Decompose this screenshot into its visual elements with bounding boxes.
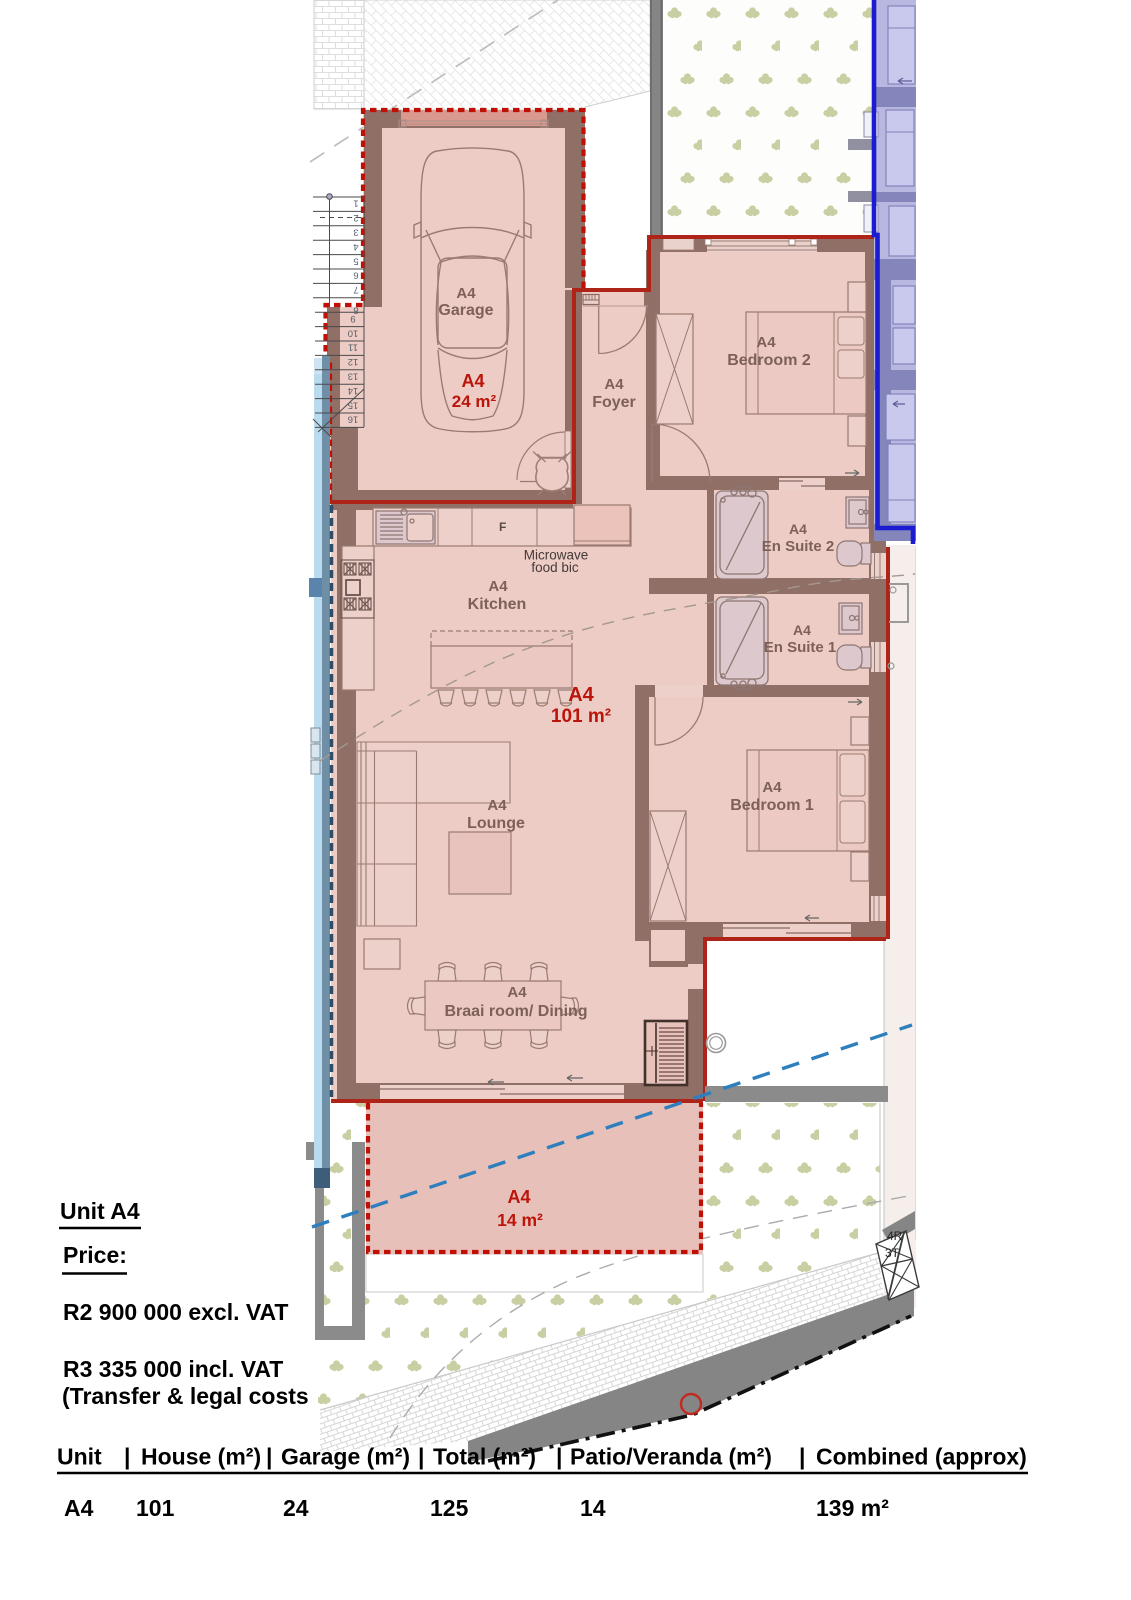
svg-text:14: 14 [580,1495,606,1521]
svg-text:Unit: Unit [57,1444,102,1470]
svg-text:A4: A4 [793,622,811,638]
svg-text:A4: A4 [568,684,594,706]
svg-text:food bic: food bic [531,560,579,575]
svg-text:5: 5 [353,255,358,266]
svg-text:En Suite 1: En Suite 1 [764,639,837,656]
svg-text:13: 13 [348,371,359,382]
svg-text:Price:: Price: [63,1242,127,1268]
svg-text:A4: A4 [488,578,508,595]
svg-text:A4: A4 [64,1495,94,1521]
svg-text:15: 15 [348,399,359,410]
svg-text:2: 2 [353,212,358,223]
svg-text:A4: A4 [456,285,476,302]
svg-text:|: | [556,1444,562,1470]
svg-text:101 m²: 101 m² [551,706,611,727]
svg-text:101: 101 [136,1495,175,1521]
svg-text:A4: A4 [507,1187,530,1207]
svg-text:|: | [799,1444,805,1470]
svg-text:(Transfer & legal costs: (Transfer & legal costs [62,1383,309,1409]
svg-text:A4: A4 [487,797,507,814]
svg-text:12: 12 [348,356,359,367]
svg-text:10: 10 [348,327,359,338]
svg-text:A4: A4 [762,779,782,796]
svg-text:3: 3 [353,227,358,238]
svg-text:A4: A4 [789,521,807,537]
svg-text:Braai room/ Dining: Braai room/ Dining [444,1003,587,1020]
svg-text:16: 16 [348,414,359,425]
svg-text:R3 335 000 incl. VAT: R3 335 000 incl. VAT [63,1356,283,1382]
svg-text:|: | [418,1444,424,1470]
svg-text:A4: A4 [756,334,776,351]
svg-text:4R: 4R [887,1229,903,1243]
svg-text:R2 900 000 excl. VAT: R2 900 000 excl. VAT [63,1299,288,1325]
svg-text:14: 14 [348,385,359,396]
svg-text:14 m²: 14 m² [497,1210,543,1230]
svg-text:A4: A4 [604,376,624,393]
svg-text:Lounge: Lounge [467,815,525,832]
svg-text:Bedroom 1: Bedroom 1 [730,797,814,814]
svg-text:A4: A4 [507,984,527,1001]
svg-text:Patio/Veranda (m²): Patio/Veranda (m²) [570,1444,772,1470]
svg-text:Garage (m²): Garage (m²) [281,1444,410,1470]
svg-text:9: 9 [350,313,355,324]
svg-text:24 m²: 24 m² [452,392,497,411]
svg-text:11: 11 [348,342,358,353]
svg-text:Combined (approx): Combined (approx) [816,1444,1027,1470]
svg-text:Unit A4: Unit A4 [60,1198,140,1224]
svg-text:|: | [124,1444,130,1470]
svg-text:125: 125 [430,1495,469,1521]
svg-text:4: 4 [353,241,358,252]
svg-text:6: 6 [353,270,358,281]
svg-text:Kitchen: Kitchen [468,596,527,613]
svg-text:|: | [266,1444,272,1470]
svg-text:7: 7 [353,284,358,295]
svg-text:A4: A4 [461,371,484,391]
svg-text:Total (m²): Total (m²) [433,1444,536,1470]
svg-text:En Suite 2: En Suite 2 [762,538,835,555]
svg-text:Bedroom 2: Bedroom 2 [727,352,811,369]
svg-text:1: 1 [353,198,358,209]
svg-text:3T: 3T [885,1246,900,1260]
svg-text:F: F [499,520,506,534]
svg-text:24: 24 [283,1495,309,1521]
svg-text:Garage: Garage [438,302,493,319]
svg-text:House (m²): House (m²) [141,1444,261,1470]
svg-text:139 m²: 139 m² [816,1495,889,1521]
svg-text:Foyer: Foyer [592,394,636,411]
